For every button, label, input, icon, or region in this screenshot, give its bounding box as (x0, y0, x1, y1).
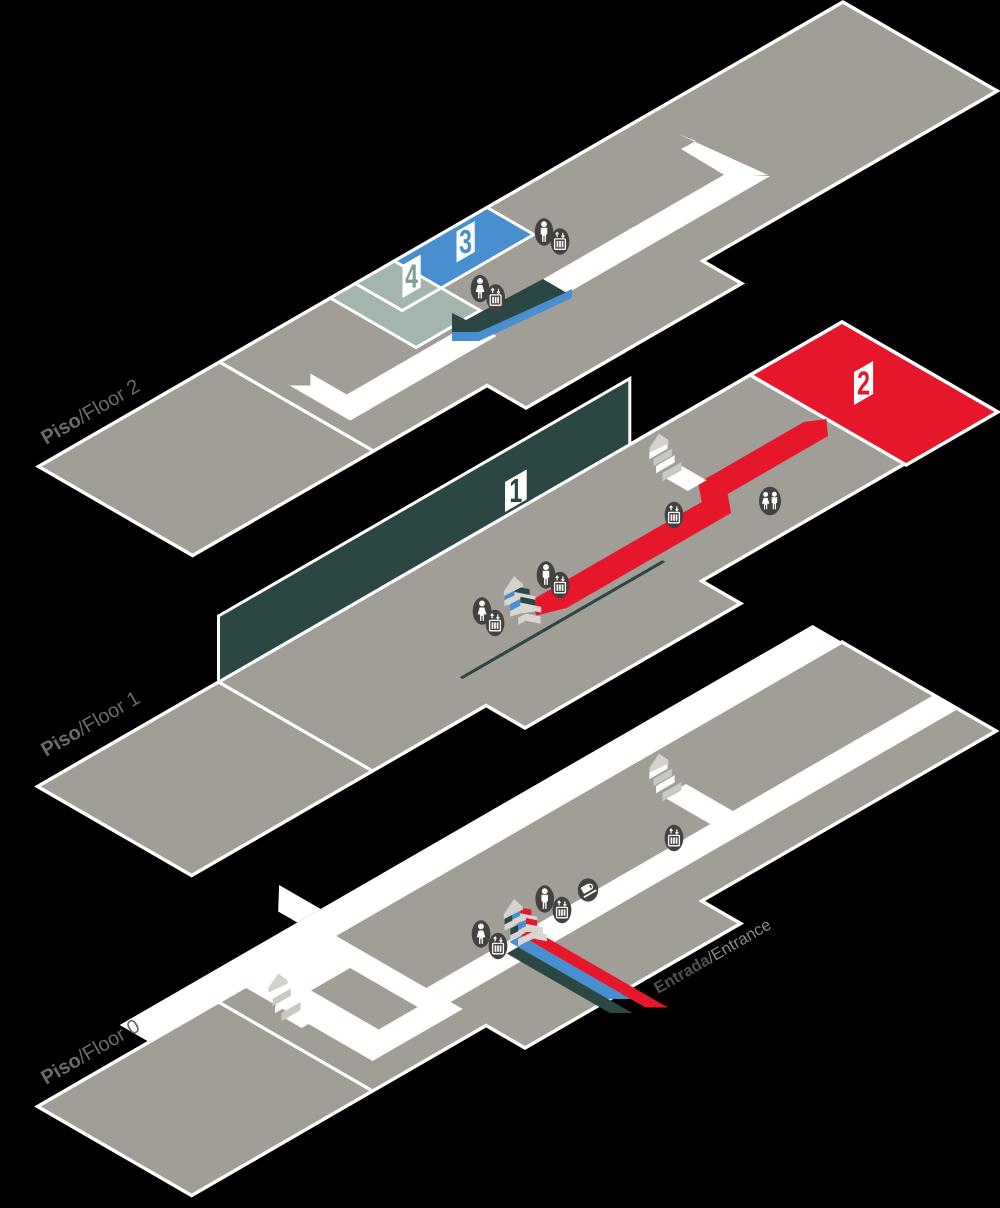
svg-text:3: 3 (459, 224, 472, 261)
svg-text:2: 2 (857, 365, 870, 402)
svg-text:1: 1 (509, 473, 522, 510)
svg-text:4: 4 (405, 259, 418, 296)
